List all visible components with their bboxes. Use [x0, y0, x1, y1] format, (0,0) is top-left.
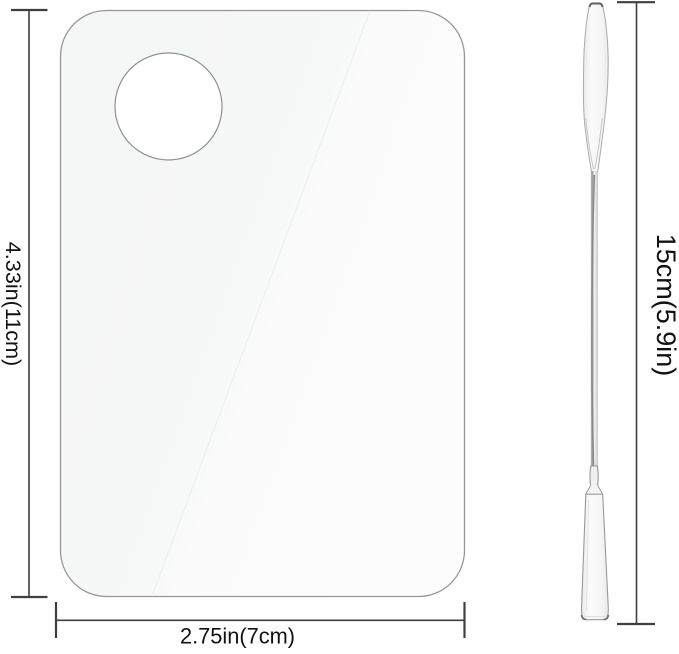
- svg-text:2.75in(7cm): 2.75in(7cm): [180, 624, 295, 649]
- svg-text:15cm(5.9in): 15cm(5.9in): [651, 234, 679, 377]
- svg-text:4.33in(11cm): 4.33in(11cm): [1, 242, 26, 366]
